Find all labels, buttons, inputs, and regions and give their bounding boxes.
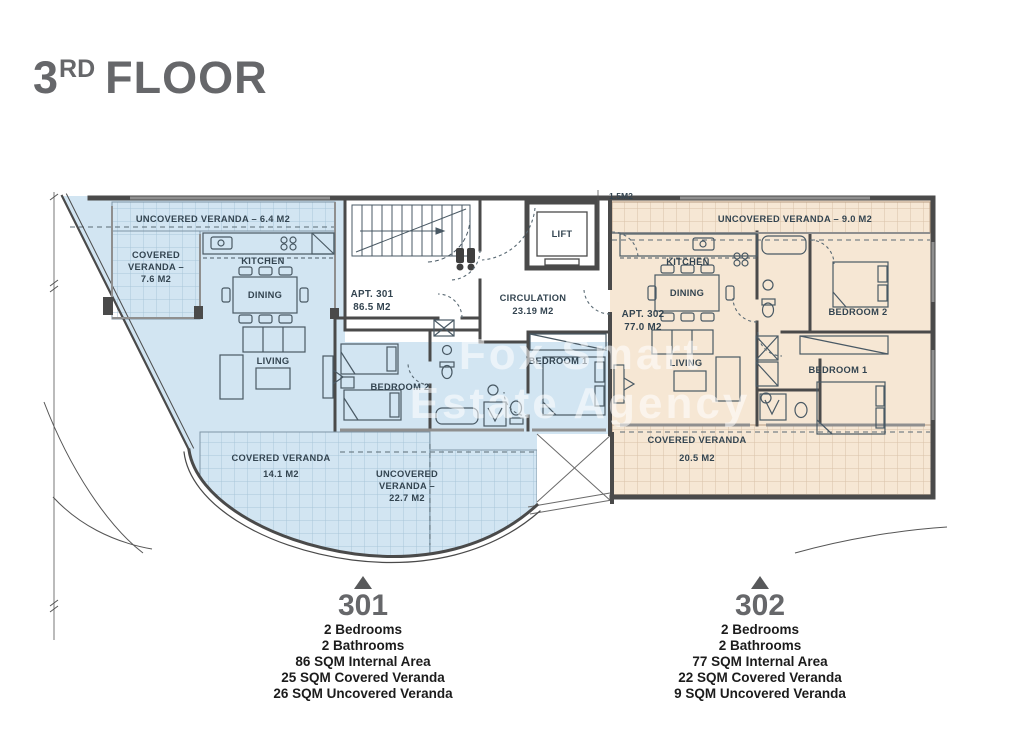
floor-plan-page: 3RDFLOOR bbox=[0, 0, 1024, 746]
label-302-covered-bottom-1: COVERED VERANDA bbox=[647, 435, 746, 445]
lightwell-area bbox=[528, 434, 612, 514]
unit-301-covered-veranda: 25 SQM Covered Veranda bbox=[233, 670, 493, 686]
label-302-bedroom1: BEDROOM 1 bbox=[808, 365, 867, 375]
label-302-living: LIVING bbox=[670, 358, 703, 368]
unit-301-bathrooms: 2 Bathrooms bbox=[233, 638, 493, 654]
label-301-covered-veranda-2: VERANDA – bbox=[128, 262, 184, 272]
label-302-covered-bottom-2: 20.5 M2 bbox=[679, 453, 715, 463]
unit-number-302: 302 bbox=[630, 590, 890, 622]
label-302-dining: DINING bbox=[670, 288, 704, 298]
marker-triangle-icon bbox=[751, 576, 769, 589]
label-301-covered-veranda-1: COVERED bbox=[132, 250, 180, 260]
unit-302-covered-veranda: 22 SQM Covered Veranda bbox=[630, 670, 890, 686]
legend-unit-301: 301 2 Bedrooms 2 Bathrooms 86 SQM Intern… bbox=[233, 576, 493, 701]
label-302-kitchen: KITCHEN bbox=[666, 257, 709, 267]
label-301-apt-1: APT. 301 bbox=[351, 289, 394, 300]
label-dim: 1.5M2 bbox=[609, 191, 633, 201]
label-circulation-2: 23.19 M2 bbox=[512, 306, 553, 316]
unit-301-bedrooms: 2 Bedrooms bbox=[233, 622, 493, 638]
unit-number-301: 301 bbox=[233, 590, 493, 622]
unit-302-uncovered-veranda: 9 SQM Uncovered Veranda bbox=[630, 686, 890, 702]
unit-302-internal-area: 77 SQM Internal Area bbox=[630, 654, 890, 670]
unit-301-uncovered-veranda: 26 SQM Uncovered Veranda bbox=[233, 686, 493, 702]
label-302-apt-2: 77.0 M2 bbox=[624, 322, 662, 333]
unit-301-internal-area: 86 SQM Internal Area bbox=[233, 654, 493, 670]
label-circulation-1: CIRCULATION bbox=[500, 293, 567, 303]
label-302-apt-1: APT. 302 bbox=[622, 309, 665, 320]
label-302-bedroom2: BEDROOM 2 bbox=[828, 307, 887, 317]
label-301-bedroom2: BEDROOM 2 bbox=[370, 382, 429, 392]
label-301-uncovered-bottom-2: VERANDA – bbox=[379, 481, 435, 491]
marker-triangle-icon bbox=[354, 576, 372, 589]
unit-302-bathrooms: 2 Bathrooms bbox=[630, 638, 890, 654]
label-301-uncovered-bottom-1: UNCOVERED bbox=[376, 469, 438, 479]
legend-unit-302: 302 2 Bedrooms 2 Bathrooms 77 SQM Intern… bbox=[630, 576, 890, 701]
label-301-apt-2: 86.5 M2 bbox=[353, 302, 391, 313]
label-301-covered-bottom-1: COVERED VERANDA bbox=[231, 453, 330, 463]
label-301-kitchen: KITCHEN bbox=[241, 256, 284, 266]
label-301-uncovered-bottom-3: 22.7 M2 bbox=[389, 493, 425, 503]
label-301-living: LIVING bbox=[257, 356, 290, 366]
label-301-covered-veranda-3: 7.6 M2 bbox=[141, 274, 171, 284]
label-lift: LIFT bbox=[552, 229, 573, 239]
label-301-dining: DINING bbox=[248, 290, 282, 300]
label-301-covered-bottom-2: 14.1 M2 bbox=[263, 469, 299, 479]
label-301-bedroom1: BEDROOM 1 bbox=[528, 356, 587, 366]
unit-302-bedrooms: 2 Bedrooms bbox=[630, 622, 890, 638]
label-301-uncovered-veranda-top: UNCOVERED VERANDA – 6.4 M2 bbox=[136, 214, 290, 224]
label-302-uncovered-veranda-top: UNCOVERED VERANDA – 9.0 M2 bbox=[718, 214, 872, 224]
